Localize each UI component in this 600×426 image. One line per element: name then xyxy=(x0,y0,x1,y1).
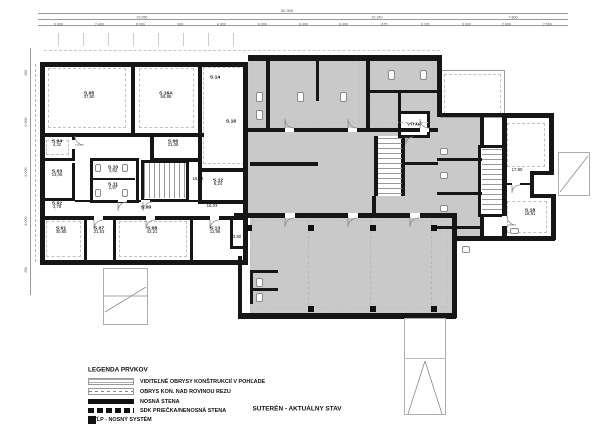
fixture-icon xyxy=(340,92,347,102)
fixture-icon xyxy=(420,70,427,80)
load-bearing-wall-symbol xyxy=(88,399,134,404)
dimension-label: 6 000 xyxy=(24,216,28,225)
construction-dashed-outline xyxy=(252,220,448,308)
drawing-element: 13,06 xyxy=(52,173,63,177)
room-label-S.18: S.1818,81 xyxy=(525,208,536,217)
dimension-label: 6 000 xyxy=(131,22,149,26)
column-marker xyxy=(308,225,314,231)
wall xyxy=(131,64,135,135)
staircase-east xyxy=(482,149,502,213)
dimension-label: 2 500 xyxy=(538,22,556,26)
door-arc-icon xyxy=(118,202,127,211)
drawing-element: 3,78 xyxy=(52,205,62,209)
construction-dashed-outline xyxy=(370,220,371,310)
wall xyxy=(198,64,202,204)
dimension-label: 6 000 xyxy=(24,167,28,176)
door-opening xyxy=(420,128,429,132)
construction-dashed-outline xyxy=(444,74,501,114)
wall xyxy=(234,213,456,218)
wall xyxy=(551,194,556,240)
visible-outline-symbol xyxy=(88,378,134,385)
room-label-17,80: 17,80 xyxy=(512,168,523,172)
floor-area-shaded xyxy=(248,128,452,218)
drawing-element: 17,80 xyxy=(512,168,523,172)
door-opening xyxy=(410,213,420,218)
drawing-element: 4,32 xyxy=(52,143,62,147)
fixture-icon xyxy=(256,92,263,102)
room-label-S.07: S.0721,53 xyxy=(94,226,105,235)
drawing-element: 11,96 xyxy=(210,230,221,234)
dimension-label: 4 900 xyxy=(212,22,230,26)
drawing-element: 16,88 xyxy=(193,177,204,181)
drawing-element: NOSNÁ STENA xyxy=(140,398,180,404)
staircase-left-block xyxy=(144,163,186,198)
construction-dashed-outline xyxy=(507,123,545,167)
partition-wall-symbol xyxy=(88,408,134,413)
room-label-S.16A: S.16A56,88 xyxy=(159,91,173,100)
dimension-label: 450 xyxy=(24,70,28,76)
room-label-S.08: S.0843,21 xyxy=(147,226,158,235)
wall xyxy=(549,113,554,175)
room-label-S.14: S.14 xyxy=(210,75,220,79)
dimension-row-3: 6 0002 4006 0009004 9006 0006 0006 00067… xyxy=(38,20,568,28)
room-label-S.04: S.044,32 xyxy=(52,139,62,148)
room-label-S.11: S.111,97 xyxy=(108,182,118,191)
door-arc-icon xyxy=(75,136,84,145)
legend-item: OBRYS KON. NAD ROVINOU REZU xyxy=(88,387,274,396)
room-label-16,88: 16,88 xyxy=(193,177,204,181)
fixture-icon xyxy=(256,278,263,287)
wall xyxy=(198,200,248,204)
room-label-S.05: S.0537,60 xyxy=(84,91,95,100)
fixture-icon xyxy=(440,205,448,212)
wall xyxy=(366,55,370,132)
dimension-label: 2 800 xyxy=(498,22,516,26)
wall xyxy=(437,113,507,117)
room-label-S.12: S.126,24 xyxy=(213,178,223,187)
floor-plan-drawing: 50 300 29 05022 2407 800 6 0002 4006 000… xyxy=(0,0,600,426)
dimension-label: 6 000 xyxy=(253,22,271,26)
construction-dashed-outline xyxy=(308,220,309,310)
drawing-element: 37,60 xyxy=(84,95,95,99)
wall xyxy=(90,158,93,203)
room-label-S.10: S.103,92 xyxy=(108,165,118,174)
column-marker xyxy=(246,225,252,231)
drawing-element: S.16 xyxy=(226,119,236,123)
dimension-label: 900 xyxy=(172,22,190,26)
room-label-S.03: S.0313,06 xyxy=(52,169,63,178)
column-marker xyxy=(370,306,376,312)
dimension-label: 6 000 xyxy=(49,22,67,26)
wall xyxy=(437,192,482,195)
wall xyxy=(198,168,248,172)
door-opening xyxy=(94,216,103,220)
dimension-label: 675 xyxy=(375,22,393,26)
dimension-line xyxy=(38,13,568,14)
wall xyxy=(190,216,193,260)
wall xyxy=(403,162,438,165)
fixture-icon xyxy=(440,172,448,179)
fixture-icon xyxy=(462,246,470,253)
wall xyxy=(266,61,270,132)
wall xyxy=(480,215,484,240)
exterior-stairs-right xyxy=(558,152,590,196)
wall xyxy=(398,93,401,113)
wall xyxy=(437,55,442,117)
wall xyxy=(150,158,198,162)
dimension-line xyxy=(30,48,31,295)
room-label-3,80: 3,80 xyxy=(233,235,241,239)
wall xyxy=(243,62,248,265)
door-opening xyxy=(348,213,358,218)
drawing-element: 30,85 xyxy=(56,230,67,234)
drawing-element: VIDITEĽNÉ OBRYSY KONŠTRUKCIÍ V POHĽADE xyxy=(140,378,265,384)
legend-item: STĹP - NOSNÝ SYSTÉM xyxy=(88,415,193,424)
drawing-element: 6,24 xyxy=(213,182,223,186)
wall xyxy=(72,163,75,200)
exterior-ramp xyxy=(404,318,446,415)
drawing-element: S.09 xyxy=(141,205,151,209)
wall xyxy=(40,260,248,265)
fixture-icon xyxy=(510,228,519,234)
wall xyxy=(40,62,45,265)
column-marker xyxy=(308,306,314,312)
wall xyxy=(480,113,484,148)
room-label-S.02: S.023,78 xyxy=(52,201,62,210)
drawing-element: 21,53 xyxy=(94,230,105,234)
wall xyxy=(136,158,139,203)
wall xyxy=(250,270,253,304)
canopy-dashed-outline xyxy=(44,50,440,51)
wall xyxy=(437,158,482,161)
door-opening xyxy=(512,183,520,185)
dimension-label: 3 181 xyxy=(416,22,434,26)
fixture-icon xyxy=(388,70,395,80)
legend-item: VIDITEĽNÉ OBRYSY KONŠTRUKCIÍ V POHĽADE xyxy=(88,377,324,386)
wall xyxy=(366,90,438,93)
construction-dashed-outline xyxy=(203,67,245,164)
wall xyxy=(250,288,278,291)
dimension-label: 2 400 xyxy=(90,22,108,26)
wall xyxy=(186,160,189,202)
dimension-label: 6 000 xyxy=(24,118,28,127)
fixture-icon xyxy=(256,110,263,120)
fixture-icon xyxy=(297,92,304,102)
wall xyxy=(250,270,278,273)
drawing-element: 56,88 xyxy=(159,95,173,99)
door-opening xyxy=(348,128,357,132)
door-opening xyxy=(285,213,295,218)
wall xyxy=(455,236,555,241)
dimension-label: 3 092 xyxy=(457,22,475,26)
door-arc-icon xyxy=(512,185,520,193)
wall xyxy=(248,55,438,61)
door-opening xyxy=(210,216,219,220)
door-opening xyxy=(72,140,75,149)
wall xyxy=(437,226,482,229)
construction-dashed-outline xyxy=(35,64,36,262)
drawing-element: 16,03 xyxy=(207,204,218,208)
room-label-S.16: S.16 xyxy=(226,119,236,123)
door-opening xyxy=(118,200,127,202)
drawing-element: 43,21 xyxy=(147,230,158,234)
column-marker xyxy=(431,306,437,312)
room-label-S.09: S.09 xyxy=(141,205,151,209)
dimension-label: 6 000 xyxy=(294,22,312,26)
drawing-element: 3,92 xyxy=(108,169,118,173)
drawing-element: 3,80 xyxy=(233,235,241,239)
wall xyxy=(230,246,245,249)
drawing-element: 18,81 xyxy=(525,212,536,216)
wall xyxy=(40,62,248,67)
drawing-element: SDK PRIEČKA/NENOSNÁ STENA xyxy=(140,407,226,413)
wall xyxy=(40,133,204,137)
fixture-icon xyxy=(95,164,101,172)
legend-item: NOSNÁ STENA xyxy=(88,397,198,406)
wall xyxy=(90,200,139,203)
drawing-element: 1,97 xyxy=(108,186,118,190)
wall xyxy=(238,256,242,316)
drawing-element xyxy=(58,33,258,46)
door-opening xyxy=(502,216,507,226)
room-label-16,03: 16,03 xyxy=(207,204,218,208)
legend-heading: LEGENDA PRVKOV xyxy=(88,366,264,373)
dimension-label: 7 800 xyxy=(508,15,517,19)
fixture-icon xyxy=(122,164,128,172)
wall xyxy=(90,158,139,161)
column-marker xyxy=(370,225,376,231)
legend-item: SDK PRIEČKA/NENOSNÁ STENA xyxy=(88,406,267,415)
construction-dashed-outline xyxy=(431,220,432,310)
drawing-element: 21,06 xyxy=(168,143,179,147)
drawing-element: STĹP - NOSNÝ SYSTÉM xyxy=(64,416,152,422)
drawing-element: OBRYS KON. NAD ROVINOU REZU xyxy=(140,388,231,394)
legend: LEGENDA PRVKOV VIDITEĽNÉ OBRYSY KONŠTRUK… xyxy=(88,366,308,375)
above-section-outline-symbol xyxy=(88,388,134,395)
fixture-icon xyxy=(256,293,263,302)
door-opening xyxy=(141,200,150,202)
drawing-element xyxy=(404,358,446,359)
room-label-S.06: S.0621,06 xyxy=(168,139,179,148)
door-opening xyxy=(146,216,155,220)
fixture-icon xyxy=(95,189,101,197)
wall xyxy=(478,145,481,217)
fixture-icon xyxy=(440,148,448,155)
dimension-label: 450 xyxy=(24,267,28,273)
wall xyxy=(502,113,554,118)
room-label-S.13: S.1311,96 xyxy=(210,226,221,235)
column-marker xyxy=(431,225,437,231)
dimension-total: 50 300 xyxy=(281,8,293,13)
wall xyxy=(93,178,135,180)
wall xyxy=(113,220,116,260)
exterior-stairs-bottom-left xyxy=(103,268,148,325)
wall xyxy=(316,61,319,101)
wall xyxy=(84,220,87,260)
door-opening xyxy=(285,128,294,132)
elevator-label: VÝŤAH xyxy=(407,122,421,127)
wall xyxy=(372,196,376,213)
staircase-right-wing xyxy=(378,138,402,194)
fixture-icon xyxy=(122,189,128,197)
room-label-S.01: S.0130,85 xyxy=(56,226,67,235)
dimension-label: 22 240 xyxy=(371,15,382,19)
wall xyxy=(250,162,318,166)
wall xyxy=(40,158,75,161)
dimension-label: 6 000 xyxy=(335,22,353,26)
dimension-label: 29 050 xyxy=(136,15,147,19)
drawing-title: SUTERÉN - AKTUÁLNY STAV xyxy=(252,405,341,412)
wall xyxy=(248,128,438,132)
drawing-element: S.14 xyxy=(210,75,220,79)
